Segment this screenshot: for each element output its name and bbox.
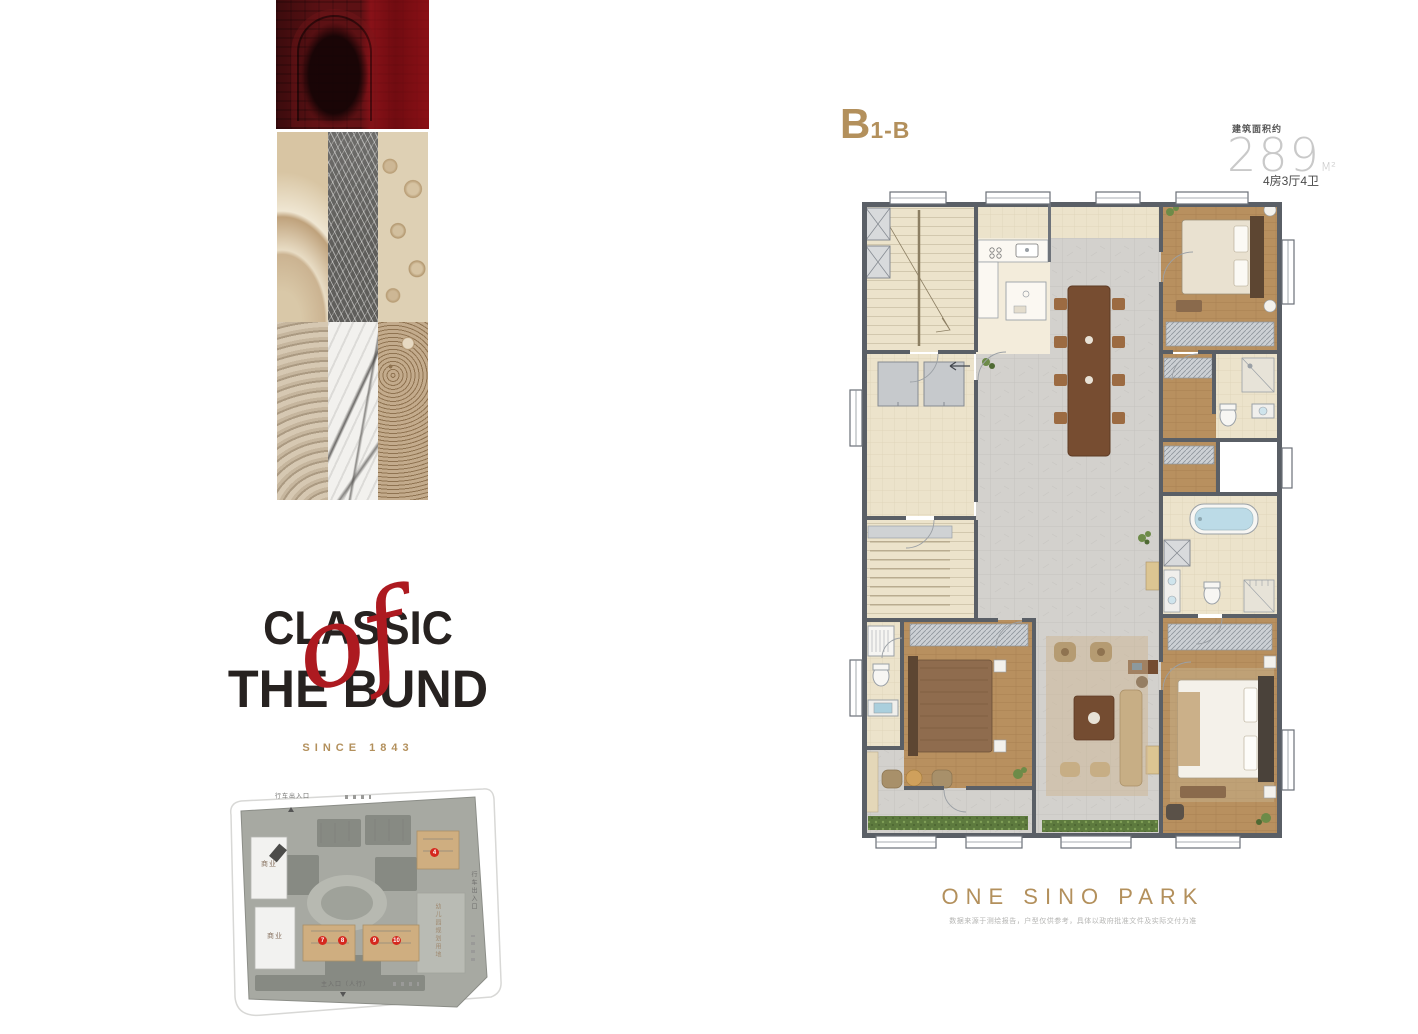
walkin-closet [1164, 358, 1212, 378]
bed-bench [1180, 786, 1226, 798]
building-marker-10: 10 [392, 936, 401, 945]
shaft-icon [1164, 540, 1190, 566]
building-marker-7: 7 [318, 936, 327, 945]
texture-white-marble [328, 322, 378, 500]
toilet-icon-1 [873, 664, 889, 686]
plan-title-main: B [840, 100, 870, 147]
building-marker-4: 4 [430, 848, 439, 857]
toilet-icon-3 [1204, 582, 1220, 604]
red-arch-photo [276, 0, 429, 129]
area-unit: M² [1321, 160, 1336, 174]
sitemap-label-commercial-1: 商业 [261, 859, 277, 869]
notch-window-frame [1282, 448, 1292, 488]
corridor-closet [1164, 446, 1214, 464]
building-marker-8: 8 [338, 936, 347, 945]
plan-title-sub: 1-B [870, 117, 910, 143]
texture-onyx-fan [277, 132, 328, 322]
texture-shagreen [378, 322, 428, 500]
kitchen-island [1006, 282, 1046, 320]
laundry-washer-icon [868, 626, 894, 656]
brand-disclaimer: 数据来源于测绘报告，户型仅供参考，具体以政府批准文件及实际交付为准 [848, 916, 1298, 926]
master-shower [1244, 580, 1274, 612]
logo-since-1843: SINCE 1843 [208, 742, 508, 754]
toilet-icon-2 [1220, 404, 1236, 426]
sitemap-label-vehicle-entrance-top: 行车出入口 [275, 791, 310, 800]
terrace-planter [868, 816, 1028, 830]
bedroom2-wardrobe [910, 624, 1028, 646]
double-vanity [1164, 570, 1180, 612]
room-count: 4房3厅4卫 [1263, 172, 1319, 189]
ensuite-shower [1242, 358, 1274, 392]
building-marker-9: 9 [370, 936, 379, 945]
floorplan-svg [846, 190, 1296, 858]
sitemap-label-commercial-2: 商业 [267, 931, 283, 941]
bedroom2-bed [908, 656, 1006, 756]
road-name-marks [393, 982, 419, 986]
bedroom1-wardrobe [1166, 322, 1274, 346]
living-planter [1042, 820, 1158, 832]
hall-cabinet [1146, 562, 1159, 590]
brand-name: ONE SINO PARK [848, 884, 1298, 910]
terrace-cabinet [866, 752, 878, 812]
nightstand [1264, 786, 1276, 798]
sitemap-label-kindergarten: 幼儿园规划用地 [433, 903, 442, 959]
landing-ledge [868, 526, 952, 538]
master-bed [1178, 676, 1274, 782]
coffee-table [1074, 696, 1114, 740]
bathtub-icon [1190, 504, 1258, 534]
brochure-page: CLASSIC THE BUND of SINCE 1843 [0, 0, 1418, 1034]
nightstand [1264, 656, 1276, 668]
texture-carved-arcs [277, 322, 328, 500]
plan-title: B1-B [840, 103, 910, 145]
sofa [1120, 690, 1142, 786]
texture-etched-stone [328, 132, 378, 322]
road-name-marks [471, 935, 475, 961]
bedroom1-bench [1176, 300, 1202, 312]
texture-floral-relief [378, 132, 428, 322]
sink-icon-1 [868, 700, 898, 716]
armchair-icon [1166, 804, 1184, 820]
road-name-marks [345, 795, 371, 799]
sitemap-label-main-entrance: 主入口（人行） [321, 979, 370, 988]
sitemap-label-vehicle-entrance-right: 行车出入口 [469, 871, 478, 911]
logo-classic-of-the-bund: CLASSIC THE BUND of SINCE 1843 [208, 604, 508, 754]
sink-icon-2 [1252, 404, 1274, 418]
site-plan: 行车出入口 商业 商业 幼儿园规划用地 主入口（人行） 行车出入口 4 7 8 … [225, 785, 505, 1020]
foyer-floor [976, 204, 1161, 238]
terrace-furniture [882, 770, 952, 788]
building-notch [1222, 442, 1277, 492]
floorplan-drawing [846, 190, 1296, 858]
